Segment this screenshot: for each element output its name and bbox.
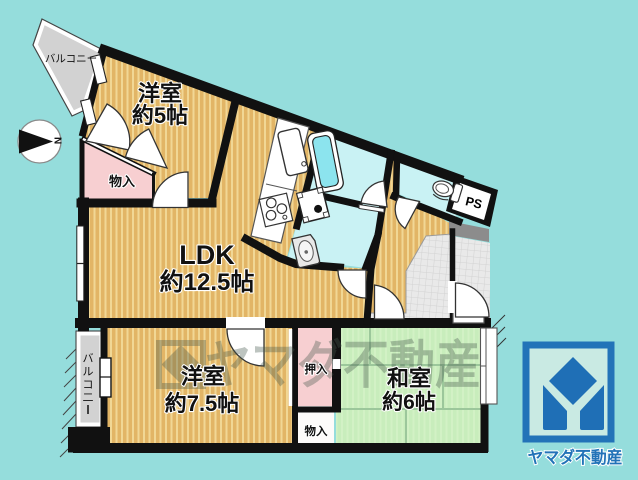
svg-text:洋室: 洋室 (181, 364, 225, 389)
svg-text:物入: 物入 (305, 424, 328, 438)
svg-text:押入: 押入 (305, 362, 328, 376)
svg-text:バルコニー: バルコニー (45, 53, 97, 65)
svg-text:ヤマダ不動産: ヤマダ不動産 (205, 337, 481, 395)
svg-text:N: N (52, 137, 63, 144)
svg-text:バ: バ (83, 352, 94, 365)
svg-text:LDK: LDK (179, 240, 235, 270)
svg-text:約5帖: 約5帖 (132, 103, 188, 128)
svg-text:ル: ル (83, 366, 94, 378)
svg-text:物入: 物入 (109, 174, 135, 189)
svg-text:二: 二 (83, 392, 94, 404)
svg-text:約7.5帖: 約7.5帖 (165, 391, 240, 416)
svg-text:約6帖: 約6帖 (382, 390, 436, 414)
svg-text:約12.5帖: 約12.5帖 (160, 268, 255, 296)
svg-text:和室: 和室 (387, 366, 431, 391)
svg-text:コ: コ (83, 379, 94, 391)
svg-text:ヤマダ不動産: ヤマダ不動産 (528, 447, 623, 467)
